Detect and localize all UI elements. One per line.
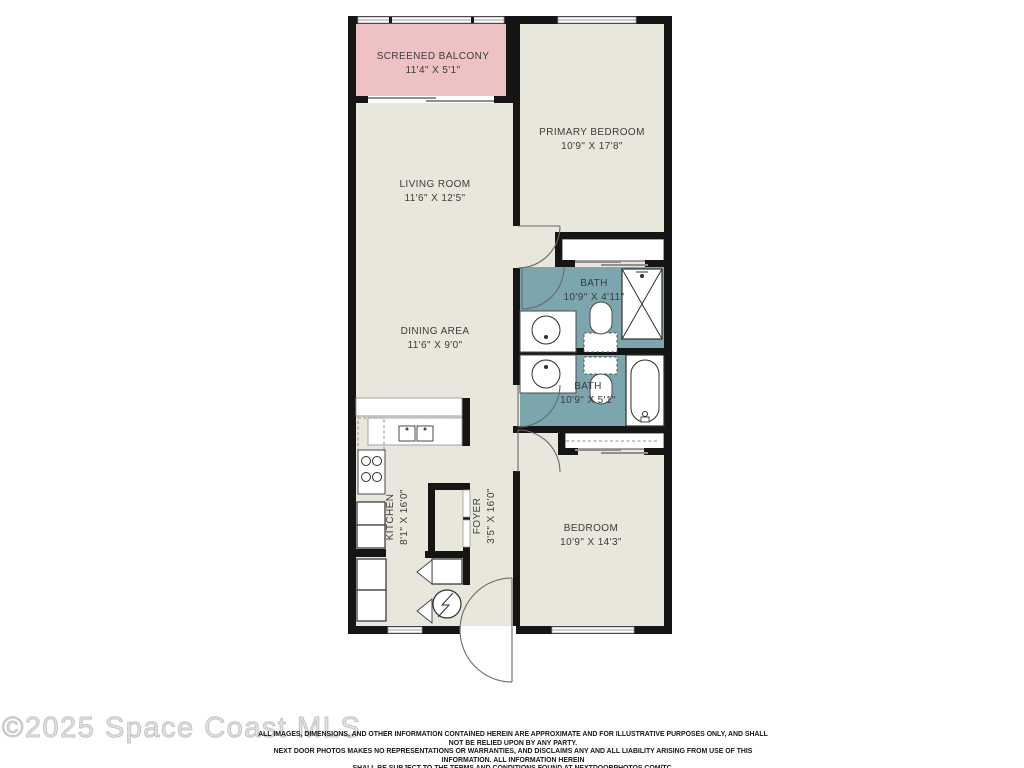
room-name: PRIMARY BEDROOM — [539, 126, 645, 140]
room-dims: 11'6" X 9'0" — [401, 339, 470, 353]
room-label-balcony: SCREENED BALCONY 11'4" X 5'1" — [377, 50, 490, 78]
room-name: DINING AREA — [401, 325, 470, 339]
room-dims: 10'9" X 5'1" — [560, 394, 616, 408]
shower-head-dot — [640, 274, 644, 278]
room-name: BATH — [560, 380, 616, 394]
coat-closet-door-1 — [463, 490, 470, 517]
disclaimer-line-2: NEXT DOOR PHOTOS MAKES NO REPRESENTATION… — [256, 748, 770, 765]
water-heater-icon — [433, 590, 461, 618]
disclaimer-line-1: ALL IMAGES, DIMENSIONS, AND OTHER INFORM… — [256, 731, 770, 748]
room-label-living-room: LIVING ROOM 11'6" X 12'5" — [399, 178, 470, 206]
room-dims: 3'5" X 16'0" — [485, 488, 499, 544]
upper-toilet-icon — [590, 302, 612, 334]
upper-bath-sink-drain — [544, 335, 548, 339]
room-label-foyer: FOYER 3'5" X 16'0" — [471, 488, 499, 544]
upper-toilet-tank — [584, 333, 617, 352]
wall-primary-bottom — [555, 232, 664, 239]
room-label-kitchen: KITCHEN 8'1" X 16'0" — [384, 489, 412, 545]
utility-shelf — [432, 559, 462, 584]
room-dims: 11'6" X 12'5" — [399, 192, 470, 206]
room-name: KITCHEN — [384, 489, 398, 545]
room-label-primary-bedroom: PRIMARY BEDROOM 10'9" X 17'8" — [539, 126, 645, 154]
refrigerator-icon — [357, 502, 385, 525]
wall-closet-stub-1 — [555, 260, 575, 267]
room-name: FOYER — [471, 488, 485, 544]
kitchen-faucet-2 — [424, 428, 427, 431]
disclaimer-text: ALL IMAGES, DIMENSIONS, AND OTHER INFORM… — [256, 731, 770, 768]
entry-opening — [460, 626, 516, 634]
room-name: LIVING ROOM — [399, 178, 470, 192]
room-dims: 8'1" X 16'0" — [398, 489, 412, 545]
washer-icon — [357, 559, 386, 590]
wall-left — [348, 16, 356, 634]
kitchen-counter-top — [356, 398, 462, 416]
lower-toilet-tank — [584, 357, 617, 374]
room-label-bath-upper: BATH 10'9" X 4'11" — [564, 277, 625, 305]
room-name: BATH — [564, 277, 625, 291]
primary-closet-floor — [562, 239, 664, 261]
room-dims: 11'4" X 5'1" — [377, 64, 490, 78]
floor-plan-drawing — [0, 0, 1024, 768]
room-label-bedroom: BEDROOM 10'9" X 14'3" — [560, 522, 622, 550]
wall-laundry — [348, 549, 386, 557]
wall-coat-closet-left — [428, 483, 435, 558]
room-name: SCREENED BALCONY — [377, 50, 490, 64]
room-name: BEDROOM — [560, 522, 622, 536]
room-label-dining-area: DINING AREA 11'6" X 9'0" — [401, 325, 470, 353]
window-mullion-1 — [389, 17, 392, 23]
wall-divider-1 — [513, 103, 520, 226]
upper-bath-vanity — [520, 311, 576, 352]
wall-wh-closet-right — [463, 553, 470, 585]
wall-balcony-stub-left — [356, 96, 368, 103]
wall-balcony-stub-right — [494, 96, 506, 103]
bathtub-icon — [626, 355, 664, 426]
stove-icon — [358, 450, 385, 494]
wall-balcony-right — [506, 16, 520, 103]
coat-closet-door-2 — [463, 520, 470, 547]
kitchen-faucet-1 — [406, 428, 409, 431]
wall-divider-3 — [513, 471, 520, 626]
room-label-bath-lower: BATH 10'9" X 5'1" — [560, 380, 616, 408]
lower-bath-sink-drain — [544, 365, 548, 369]
floor-plan-page: SCREENED BALCONY 11'4" X 5'1" PRIMARY BE… — [0, 0, 1024, 768]
wall-bath-bedroom — [513, 426, 664, 433]
bathtub-faucet — [641, 417, 649, 422]
dryer-icon — [357, 590, 386, 621]
room-dims: 10'9" X 14'3" — [560, 536, 622, 550]
window-mullion-2 — [471, 17, 474, 23]
wall-kitchen-stub — [462, 398, 470, 446]
room-dims: 10'9" X 17'8" — [539, 140, 645, 154]
room-dims: 10'9" X 4'11" — [564, 291, 625, 305]
wall-right — [664, 16, 672, 634]
wall-divider-2 — [513, 268, 520, 385]
pantry-cabinet-icon — [357, 525, 385, 548]
